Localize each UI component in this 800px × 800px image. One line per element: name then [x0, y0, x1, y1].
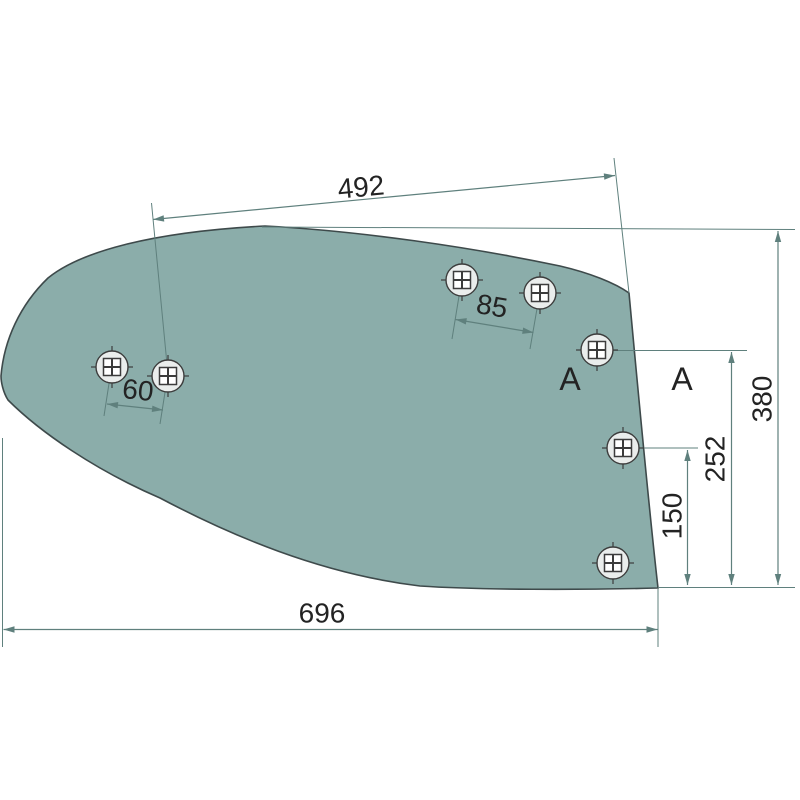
- dim-label-150: 150: [657, 493, 688, 540]
- technical-drawing-canvas: 492 85 60 380 252 150 696 A A: [0, 0, 800, 800]
- section-label-a-right: A: [671, 361, 693, 397]
- dim-label-696: 696: [299, 598, 346, 629]
- dim-label-60: 60: [121, 373, 155, 407]
- section-label-a-left: A: [559, 361, 581, 397]
- mouldboard-part-shape: [1, 226, 658, 589]
- mouldboard-drawing: 492 85 60 380 252 150 696 A A: [0, 0, 800, 800]
- dim-label-85: 85: [474, 288, 510, 324]
- dim-label-492: 492: [336, 169, 385, 204]
- dim-label-252: 252: [700, 436, 731, 483]
- dim-label-380: 380: [747, 376, 778, 423]
- ext-line-top: [262, 227, 795, 230]
- ext-line-492-right: [614, 158, 629, 293]
